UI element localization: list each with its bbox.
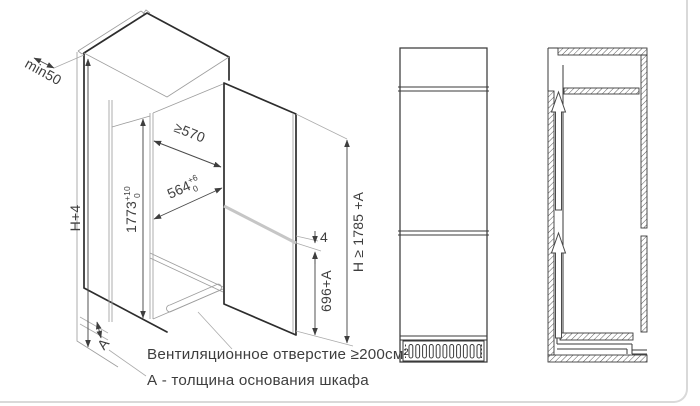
- fridge-door-open: [224, 83, 296, 335]
- dim-door-gap-label: 4: [320, 229, 328, 245]
- front-view-dividers: [398, 87, 489, 340]
- dimension-lines: [34, 58, 347, 347]
- vent-grille: [403, 341, 484, 361]
- installation-diagram: min50 ≥570 564+60 H+4 1773+100 4 696+A H…: [0, 0, 700, 406]
- vent-slot: [167, 284, 222, 312]
- dim-depth-label: ≥570: [172, 119, 208, 146]
- door-divider: [224, 206, 296, 243]
- isometric-view: min50 ≥570 564+60 H+4 1773+100 4 696+A H…: [22, 10, 366, 376]
- diagram-canvas: min50 ≥570 564+60 H+4 1773+100 4 696+A H…: [0, 0, 700, 406]
- cabinet-outline: [84, 13, 229, 332]
- front-view: [398, 48, 489, 362]
- dim-niche-height-label: 1773+100: [122, 186, 142, 233]
- base-thickness-caption: А - толщина основания шкафа: [147, 372, 369, 389]
- dim-total-height-label: H ≥ 1785 +A: [350, 191, 366, 272]
- dim-cabinet-height-label: H+4: [67, 205, 83, 232]
- vent-caption: Вентиляционное отверстие ≥200см²: [147, 346, 409, 363]
- dim-freezer-height-label: 696+A: [318, 270, 334, 312]
- side-section-view: [548, 48, 647, 362]
- dim-min-gap-label: min50: [22, 55, 64, 88]
